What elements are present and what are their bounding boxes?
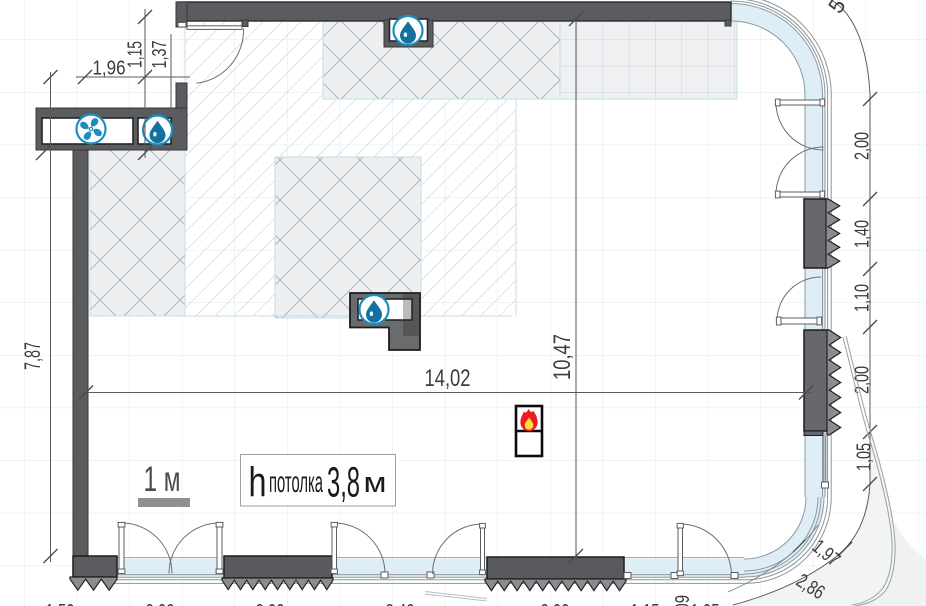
svg-text:3,40: 3,40: [386, 601, 415, 606]
svg-text:1,40: 1,40: [851, 220, 873, 248]
svg-text:2,00: 2,00: [851, 132, 873, 160]
svg-text:h: h: [249, 459, 267, 506]
svg-text:1,96: 1,96: [93, 58, 126, 80]
svg-text:1,05: 1,05: [691, 601, 720, 606]
svg-text:1,15: 1,15: [125, 41, 147, 68]
svg-text:14,02: 14,02: [425, 365, 471, 392]
svg-text:2,00: 2,00: [146, 601, 175, 606]
svg-text:7,87: 7,87: [20, 342, 45, 370]
svg-text:2,00: 2,00: [541, 601, 570, 606]
svg-text:м: м: [364, 467, 387, 499]
svg-text:1 м: 1 м: [144, 460, 181, 499]
svg-text:2,00: 2,00: [256, 601, 285, 606]
svg-text:1,37: 1,37: [149, 41, 171, 69]
svg-text:3,8: 3,8: [327, 459, 360, 507]
svg-text:1,10: 1,10: [851, 284, 873, 312]
svg-text:потолка: потолка: [269, 466, 323, 499]
svg-text:1,50: 1,50: [46, 601, 75, 606]
svg-text:10,47: 10,47: [549, 334, 576, 380]
svg-text:1,15: 1,15: [631, 601, 660, 606]
svg-text:6,09: 6,09: [672, 595, 694, 606]
